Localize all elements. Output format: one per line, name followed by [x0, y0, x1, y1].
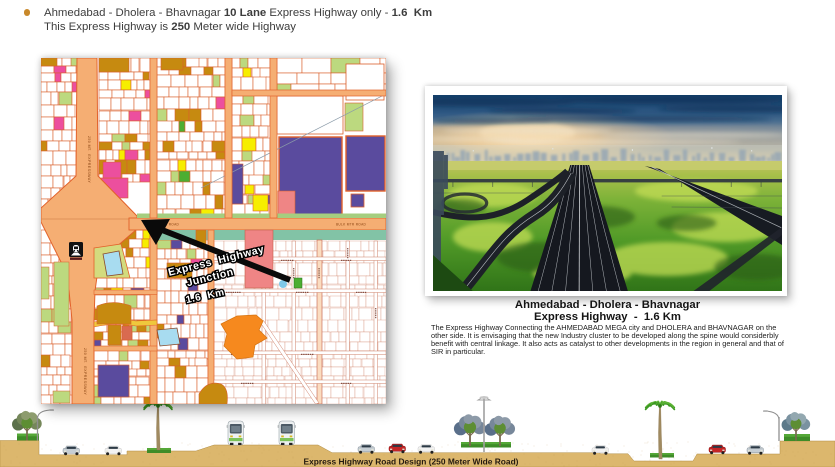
svg-text:250 MT. EXPRESSWAY: 250 MT. EXPRESSWAY	[87, 136, 91, 183]
svg-text:250 MT. EXPRESSWAY: 250 MT. EXPRESSWAY	[83, 348, 87, 395]
svg-text:Express Highway Road Design (2: Express Highway Road Design (250 Meter W…	[304, 457, 519, 467]
svg-text:BULK MTR ROAD: BULK MTR ROAD	[336, 223, 367, 227]
